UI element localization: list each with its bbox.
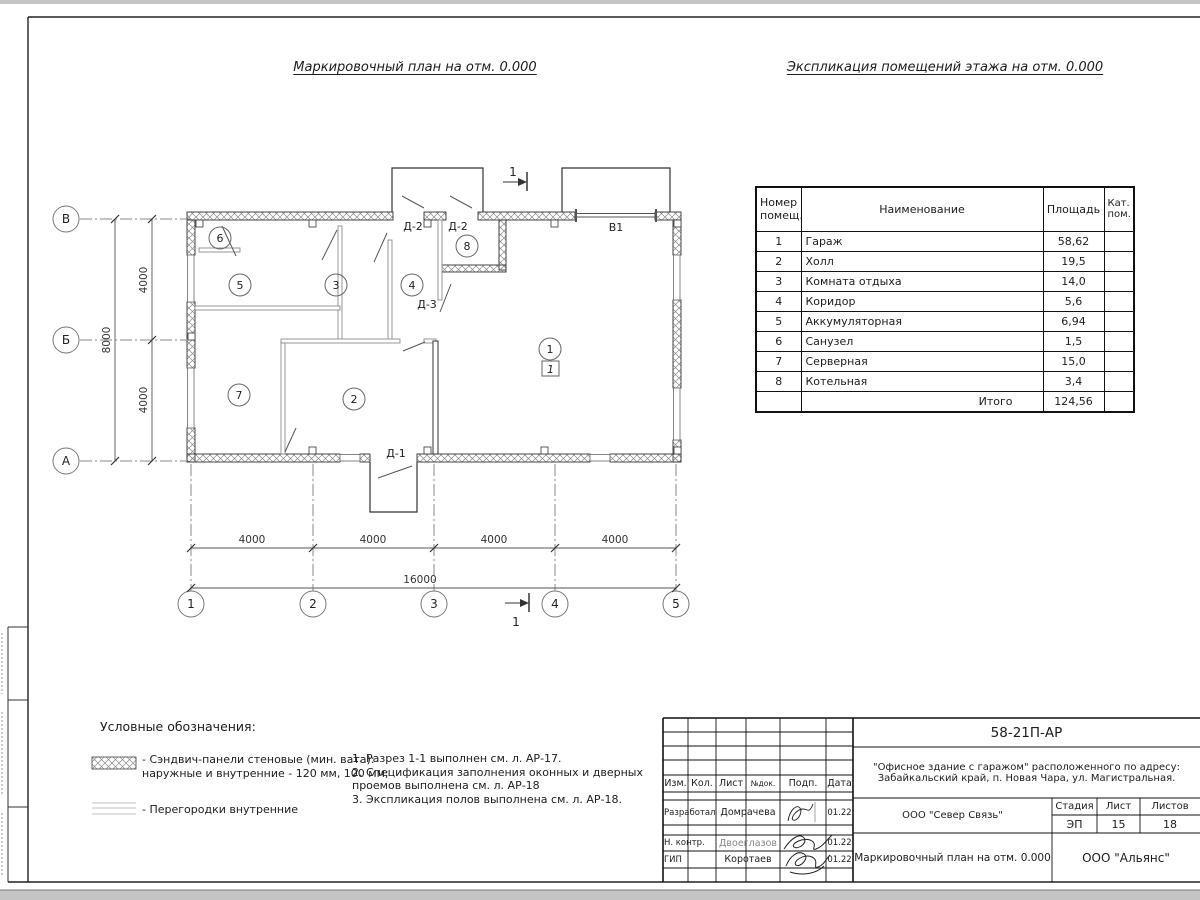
project-address: "Офисное здание с гаражом" расположенног… xyxy=(853,747,1200,798)
date-developer: 01.22 xyxy=(826,800,853,825)
room-label-6: 6 xyxy=(217,232,224,245)
legend-item-partition: - Перегородки внутренние xyxy=(142,803,298,817)
gate-label-b1: В1 xyxy=(609,221,624,234)
axis-letter-v: В xyxy=(62,212,70,226)
col-podp: Подп. xyxy=(780,775,826,792)
table-row: 2Холл19,5 xyxy=(756,251,1134,271)
total-area: 124,56 xyxy=(1043,391,1104,412)
col-list: Лист xyxy=(716,775,746,792)
col-header-name: Наименование xyxy=(801,187,1043,231)
sheet-value: 15 xyxy=(1097,815,1140,833)
table-row: 6Санузел1,5 xyxy=(756,331,1134,351)
door-label-d2b: Д-2 xyxy=(448,220,468,233)
garage-type-mark: 1 xyxy=(547,363,554,376)
explication-table: Номерпомещ. Наименование Площадь Кат.пом… xyxy=(755,186,1135,413)
drawing-sheet: В Б А 1 2 3 4 5 4000 4000 4 xyxy=(0,0,1200,900)
sheet-label: Лист xyxy=(1097,798,1140,815)
dim-4000-3: 4000 xyxy=(481,534,508,546)
name-ncontrol: Двоеглазов xyxy=(716,835,780,851)
axis-number-5: 5 xyxy=(672,597,680,611)
door-label-d1: Д-1 xyxy=(386,447,406,460)
room-label-2: 2 xyxy=(351,393,358,406)
section-mark-bottom: 1 xyxy=(505,593,529,629)
svg-text:1: 1 xyxy=(509,165,517,179)
axis-letter-a: А xyxy=(62,454,71,468)
role-developer: Разработал xyxy=(664,800,715,825)
dim-left-4000-2: 4000 xyxy=(138,387,150,414)
role-gip: ГИП xyxy=(664,851,715,868)
doc-number: 58-21П-АР xyxy=(853,718,1200,747)
door-label-d2a: Д-2 xyxy=(403,220,423,233)
room-label-5: 5 xyxy=(237,279,244,292)
room-label-3: 3 xyxy=(333,279,340,292)
svg-text:1: 1 xyxy=(512,615,520,629)
dim-left-4000-1: 4000 xyxy=(138,267,150,294)
room-label-1: 1 xyxy=(547,343,554,356)
dim-4000-2: 4000 xyxy=(360,534,387,546)
table-row: 3Комната отдыха14,0 xyxy=(756,271,1134,291)
col-izm: Изм. xyxy=(663,775,688,792)
dim-8000: 8000 xyxy=(101,327,113,354)
dim-16000: 16000 xyxy=(403,574,436,586)
stage-value: ЭП xyxy=(1052,815,1097,833)
axis-number-2: 2 xyxy=(309,597,317,611)
name-gip: Коротаев xyxy=(716,851,780,868)
col-kol: Кол. xyxy=(688,775,716,792)
drawing-notes: 1. Разрез 1-1 выполнен см. л. АР-17. 2. … xyxy=(352,752,643,806)
partitions xyxy=(195,220,442,454)
table-row: 4Коридор5,6 xyxy=(756,291,1134,311)
axis-letter-b: Б xyxy=(62,333,70,347)
filing-strip xyxy=(2,627,28,882)
signature-developer xyxy=(788,802,815,822)
col-header-num: Номерпомещ. xyxy=(756,187,801,231)
doc-title: Маркировочный план на отм. 0.000 xyxy=(853,833,1052,882)
org-customer: ООО "Альянс" xyxy=(1052,833,1200,882)
name-developer: Домрачева xyxy=(716,800,780,825)
stage-label: Стадия xyxy=(1052,798,1097,815)
dim-4000-4: 4000 xyxy=(602,534,629,546)
sheets-label: Листов xyxy=(1140,798,1200,815)
total-label: Итого xyxy=(801,391,1043,412)
col-header-cat: Кат.пом. xyxy=(1104,187,1134,231)
role-ncontrol: Н. контр. xyxy=(664,835,715,851)
legend-title: Условные обозначения: xyxy=(100,719,256,734)
dimension-ticks xyxy=(111,215,680,592)
col-header-area: Площадь xyxy=(1043,187,1104,231)
axis-number-3: 3 xyxy=(430,597,438,611)
table-row: 5Аккумуляторная6,94 xyxy=(756,311,1134,331)
dim-4000-1: 4000 xyxy=(239,534,266,546)
room-label-8: 8 xyxy=(464,240,471,253)
date-ncontrol: 01.22 xyxy=(826,835,853,851)
room-label-7: 7 xyxy=(236,389,243,402)
table-row: 1Гараж58,62 xyxy=(756,231,1134,251)
org-contractor: ООО "Север Связь" xyxy=(853,798,1052,833)
room-label-4: 4 xyxy=(409,279,416,292)
section-mark-top: 1 xyxy=(503,165,527,191)
plan-title: Маркировочный план на отм. 0.000 xyxy=(270,57,560,77)
legend-swatch-partition xyxy=(92,803,136,814)
explication-title: Экспликация помещений этажа на отм. 0.00… xyxy=(762,57,1128,77)
legend-swatch-sandwich xyxy=(92,757,136,769)
table-row: 7Серверная15,0 xyxy=(756,351,1134,371)
col-ndok: №док. xyxy=(746,775,780,792)
table-row: 8Котельная3,4 xyxy=(756,371,1134,391)
col-data: Дата xyxy=(826,775,853,792)
table-total-row: Итого 124,56 xyxy=(756,391,1134,412)
sheets-value: 18 xyxy=(1140,815,1200,833)
axis-number-1: 1 xyxy=(187,597,195,611)
door-label-d3: Д-3 xyxy=(417,298,437,311)
room-bubbles xyxy=(209,227,561,410)
date-gip: 01.22 xyxy=(826,851,853,868)
axis-number-4: 4 xyxy=(551,597,559,611)
dimension-lines xyxy=(115,219,676,588)
